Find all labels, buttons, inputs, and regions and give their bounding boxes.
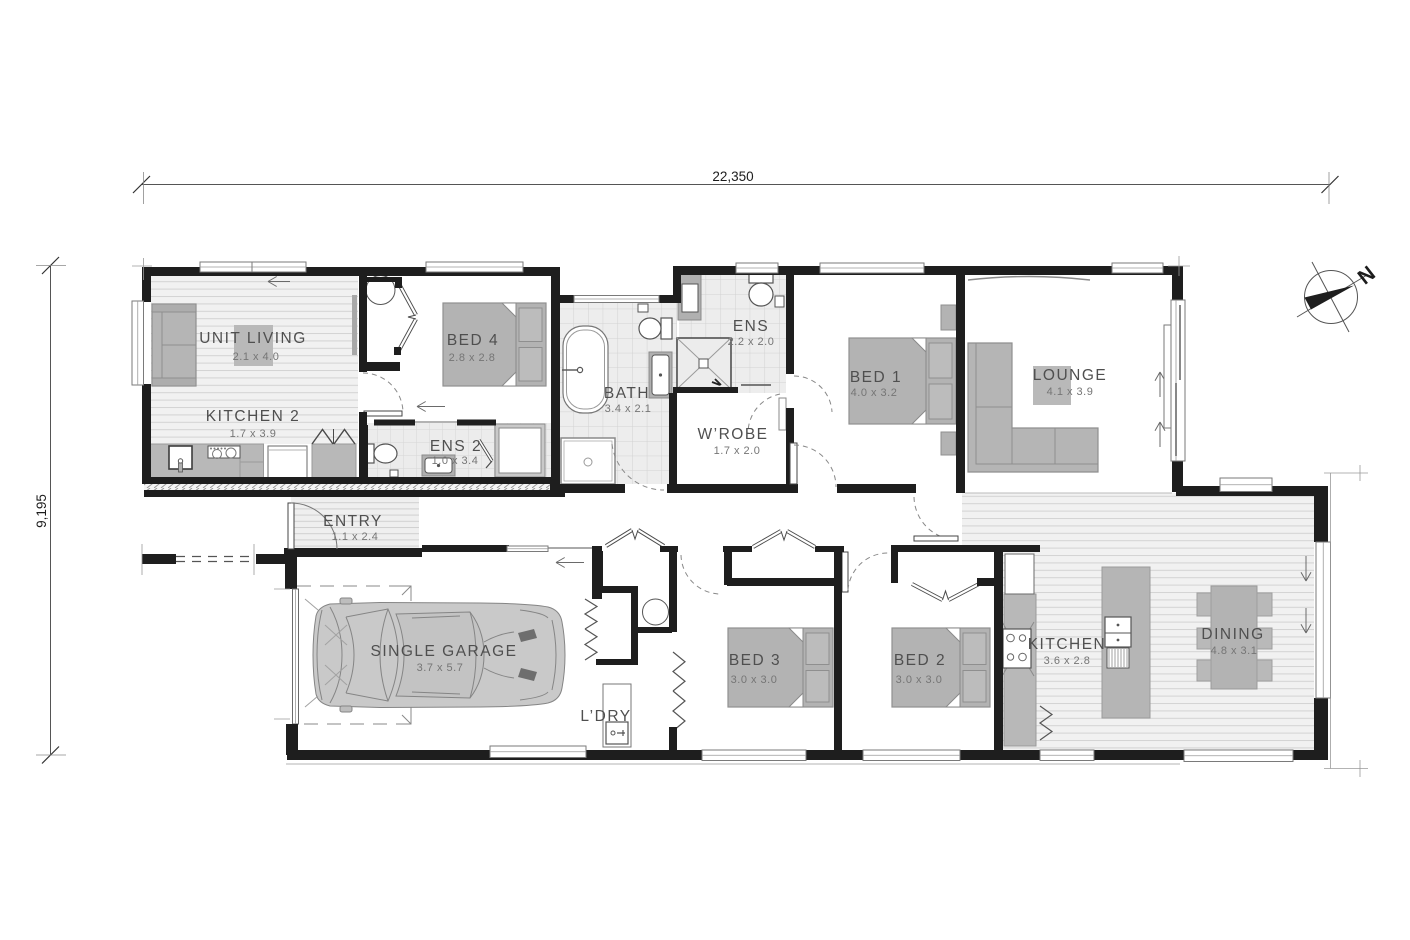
- svg-text:ENS 2: ENS 2: [430, 438, 482, 455]
- svg-text:3.0 x 3.0: 3.0 x 3.0: [896, 674, 943, 686]
- svg-text:9,195: 9,195: [34, 494, 49, 528]
- svg-text:BED 2: BED 2: [894, 652, 946, 669]
- svg-text:LOUNGE: LOUNGE: [1033, 367, 1107, 384]
- svg-text:UNIT LIVING: UNIT LIVING: [199, 330, 307, 347]
- svg-text:L’DRY: L’DRY: [580, 708, 631, 725]
- svg-text:22,350: 22,350: [712, 169, 753, 184]
- svg-text:KITCHEN 2: KITCHEN 2: [206, 408, 300, 425]
- svg-text:1.0 x 3.4: 1.0 x 3.4: [432, 455, 479, 467]
- svg-text:3.7 x 5.7: 3.7 x 5.7: [417, 662, 464, 674]
- svg-text:BED 4: BED 4: [447, 332, 499, 349]
- svg-text:3.4 x 2.1: 3.4 x 2.1: [605, 403, 652, 415]
- svg-text:SINGLE GARAGE: SINGLE GARAGE: [371, 643, 518, 660]
- svg-text:BATH: BATH: [604, 385, 650, 402]
- svg-text:ENTRY: ENTRY: [323, 513, 383, 530]
- svg-text:DINING: DINING: [1201, 626, 1264, 643]
- svg-text:BED 3: BED 3: [729, 652, 781, 669]
- svg-text:BED 1: BED 1: [850, 369, 902, 386]
- svg-text:KITCHEN: KITCHEN: [1028, 636, 1107, 653]
- svg-text:W’ROBE: W’ROBE: [698, 426, 769, 443]
- svg-text:2.1 x 4.0: 2.1 x 4.0: [233, 351, 280, 363]
- svg-text:3.0 x 3.0: 3.0 x 3.0: [731, 674, 778, 686]
- svg-text:4.8 x 3.1: 4.8 x 3.1: [1211, 645, 1258, 657]
- svg-text:1.7 x 3.9: 1.7 x 3.9: [230, 428, 277, 440]
- svg-text:2.2 x 2.0: 2.2 x 2.0: [728, 336, 775, 348]
- svg-text:2.8 x 2.8: 2.8 x 2.8: [449, 352, 496, 364]
- svg-text:1.7 x 2.0: 1.7 x 2.0: [714, 445, 761, 457]
- svg-text:4.0 x 3.2: 4.0 x 3.2: [851, 387, 898, 399]
- svg-text:3.6 x 2.8: 3.6 x 2.8: [1044, 655, 1091, 667]
- svg-text:1.1 x 2.4: 1.1 x 2.4: [332, 531, 379, 543]
- svg-text:4.1 x 3.9: 4.1 x 3.9: [1047, 386, 1094, 398]
- svg-text:ENS: ENS: [733, 318, 769, 335]
